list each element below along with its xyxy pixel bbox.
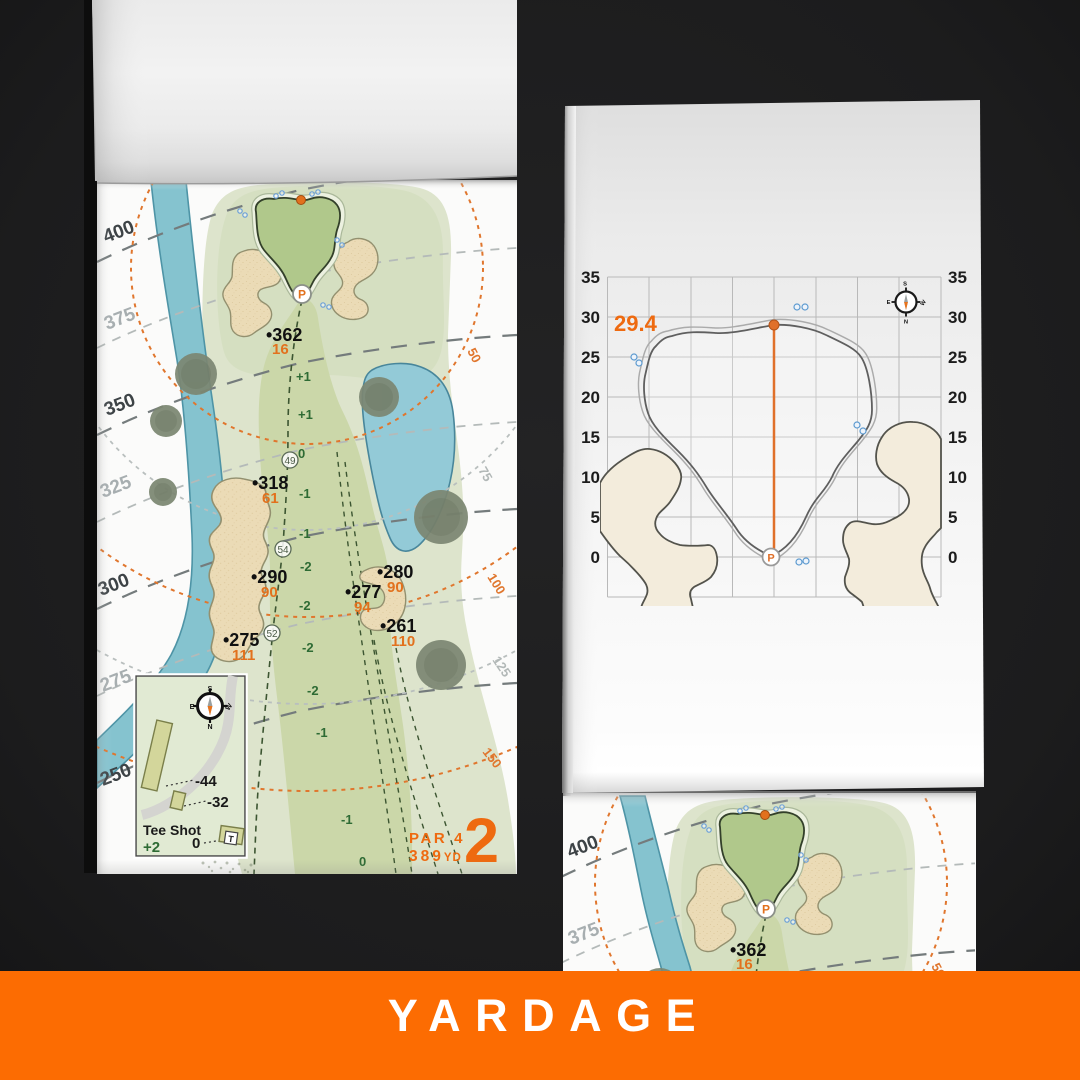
svg-text:25: 25 xyxy=(581,348,600,367)
svg-text:15: 15 xyxy=(581,428,600,447)
svg-text:25: 25 xyxy=(948,348,967,367)
svg-text:30: 30 xyxy=(581,308,600,327)
svg-text:E: E xyxy=(887,300,891,306)
svg-text:S: S xyxy=(903,282,907,288)
svg-text:YARDAGE: YARDAGE xyxy=(388,990,710,1041)
svg-text:15: 15 xyxy=(948,428,967,447)
svg-text:20: 20 xyxy=(581,388,600,407)
svg-text:P: P xyxy=(767,553,774,565)
svg-text:10: 10 xyxy=(948,468,967,487)
svg-text:0: 0 xyxy=(948,548,957,567)
svg-text:35: 35 xyxy=(948,268,967,287)
svg-text:10: 10 xyxy=(581,468,600,487)
svg-text:N: N xyxy=(904,320,908,326)
svg-text:5: 5 xyxy=(591,508,600,527)
svg-text:35: 35 xyxy=(581,268,600,287)
svg-text:30: 30 xyxy=(948,308,967,327)
svg-text:5: 5 xyxy=(948,508,957,527)
svg-text:0: 0 xyxy=(591,548,600,567)
svg-text:20: 20 xyxy=(948,388,967,407)
svg-text:29.4: 29.4 xyxy=(614,311,658,336)
